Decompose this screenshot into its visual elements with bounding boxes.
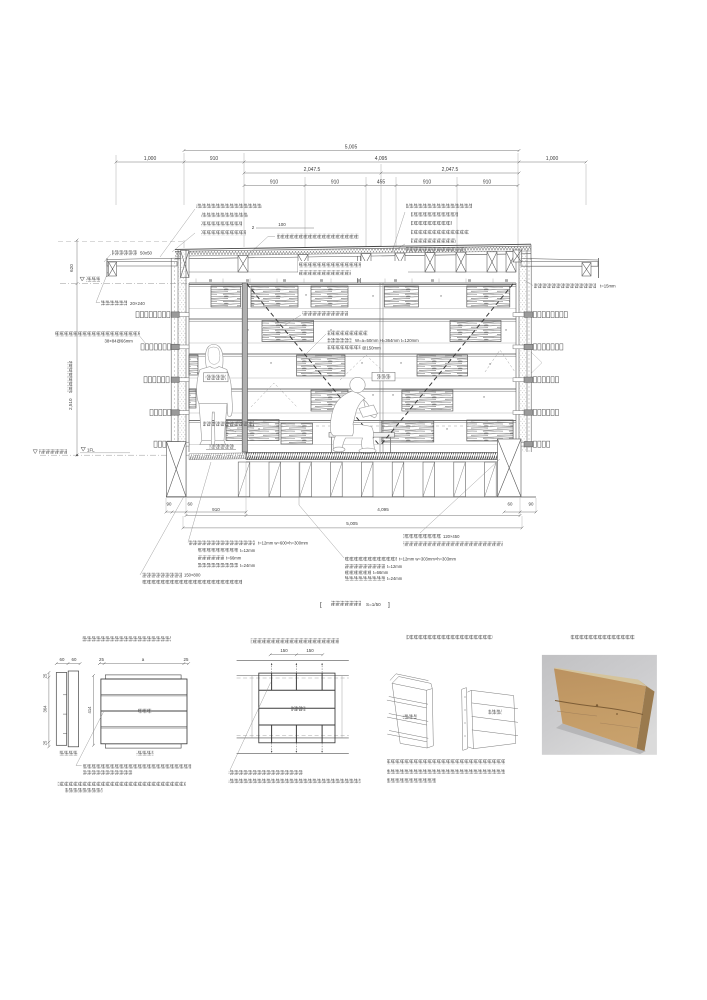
svg-text:150: 150: [280, 648, 288, 653]
svg-text:2,047.5: 2,047.5: [442, 167, 459, 173]
svg-text:25: 25: [43, 673, 48, 678]
svg-text:n: n: [446, 427, 448, 431]
svg-text:t=66mm: t=66mm: [226, 555, 242, 560]
svg-text:910: 910: [270, 180, 279, 186]
svg-text:38×84@66mm: 38×84@66mm: [105, 338, 134, 343]
svg-text:100: 100: [278, 222, 286, 227]
svg-text:n: n: [258, 427, 260, 431]
svg-text:n: n: [270, 361, 272, 365]
svg-text:n: n: [483, 395, 485, 399]
svg-text:25: 25: [184, 657, 189, 662]
svg-text:1FL: 1FL: [87, 448, 95, 453]
svg-text:t=24mm: t=24mm: [387, 576, 403, 581]
svg-text:n: n: [400, 361, 402, 365]
svg-text:t=12mm: t=12mm: [387, 564, 403, 569]
svg-text:910: 910: [212, 507, 220, 512]
svg-text:910: 910: [331, 180, 340, 186]
svg-text:2,047.5: 2,047.5: [304, 167, 321, 173]
svg-text:120×450: 120×450: [443, 534, 460, 539]
svg-text:t=12mm: t=12mm: [240, 548, 256, 553]
svg-text:[: [: [320, 602, 322, 609]
svg-text:414: 414: [87, 706, 92, 714]
svg-text:W=a=50mm H=364mm t=120mm: W=a=50mm H=364mm t=120mm: [355, 338, 419, 343]
svg-text:90: 90: [529, 502, 534, 507]
svg-text:n: n: [392, 393, 394, 397]
svg-text:620: 620: [69, 264, 74, 272]
svg-text:n: n: [361, 361, 363, 365]
svg-text:t=66mm: t=66mm: [373, 570, 389, 575]
svg-text:1,000: 1,000: [546, 156, 559, 162]
svg-text:n: n: [440, 294, 442, 298]
svg-text:n: n: [372, 294, 374, 298]
svg-text:90: 90: [167, 502, 172, 507]
svg-text:910: 910: [483, 180, 492, 186]
svg-text:]: ]: [388, 602, 390, 609]
svg-text:@150mm: @150mm: [362, 346, 381, 351]
svg-text:60: 60: [188, 502, 193, 507]
svg-text:1,000: 1,000: [144, 156, 157, 162]
svg-text:910: 910: [423, 180, 432, 186]
svg-text:t=24mm: t=24mm: [240, 563, 256, 568]
svg-text:20×240: 20×240: [130, 301, 145, 306]
svg-text:910: 910: [210, 156, 219, 162]
svg-text:4,095: 4,095: [377, 507, 389, 512]
svg-text:60: 60: [60, 657, 65, 662]
svg-text:4,095: 4,095: [375, 156, 388, 162]
svg-text:n: n: [505, 328, 507, 332]
svg-text:364: 364: [43, 705, 48, 713]
svg-text:150×800: 150×800: [184, 573, 201, 578]
svg-text:25: 25: [43, 740, 48, 745]
svg-text:5,005: 5,005: [345, 145, 358, 151]
svg-text:n: n: [305, 293, 307, 297]
svg-text:150: 150: [306, 648, 314, 653]
svg-text:S=1/50: S=1/50: [366, 602, 381, 607]
svg-text:50x50: 50x50: [140, 251, 153, 256]
svg-text:5,005: 5,005: [346, 521, 358, 526]
svg-text:25: 25: [99, 657, 104, 662]
svg-text:60: 60: [72, 657, 77, 662]
svg-text:2,510: 2,510: [68, 398, 73, 410]
svg-text:t=15mm: t=15mm: [600, 284, 616, 289]
svg-text:t=12mm w=303mm×h=303mm: t=12mm w=303mm×h=303mm: [399, 556, 457, 561]
svg-text:t=12mm w=600×h=300mm: t=12mm w=600×h=300mm: [258, 541, 309, 546]
svg-text:n: n: [372, 393, 374, 397]
svg-text:60: 60: [508, 502, 513, 507]
